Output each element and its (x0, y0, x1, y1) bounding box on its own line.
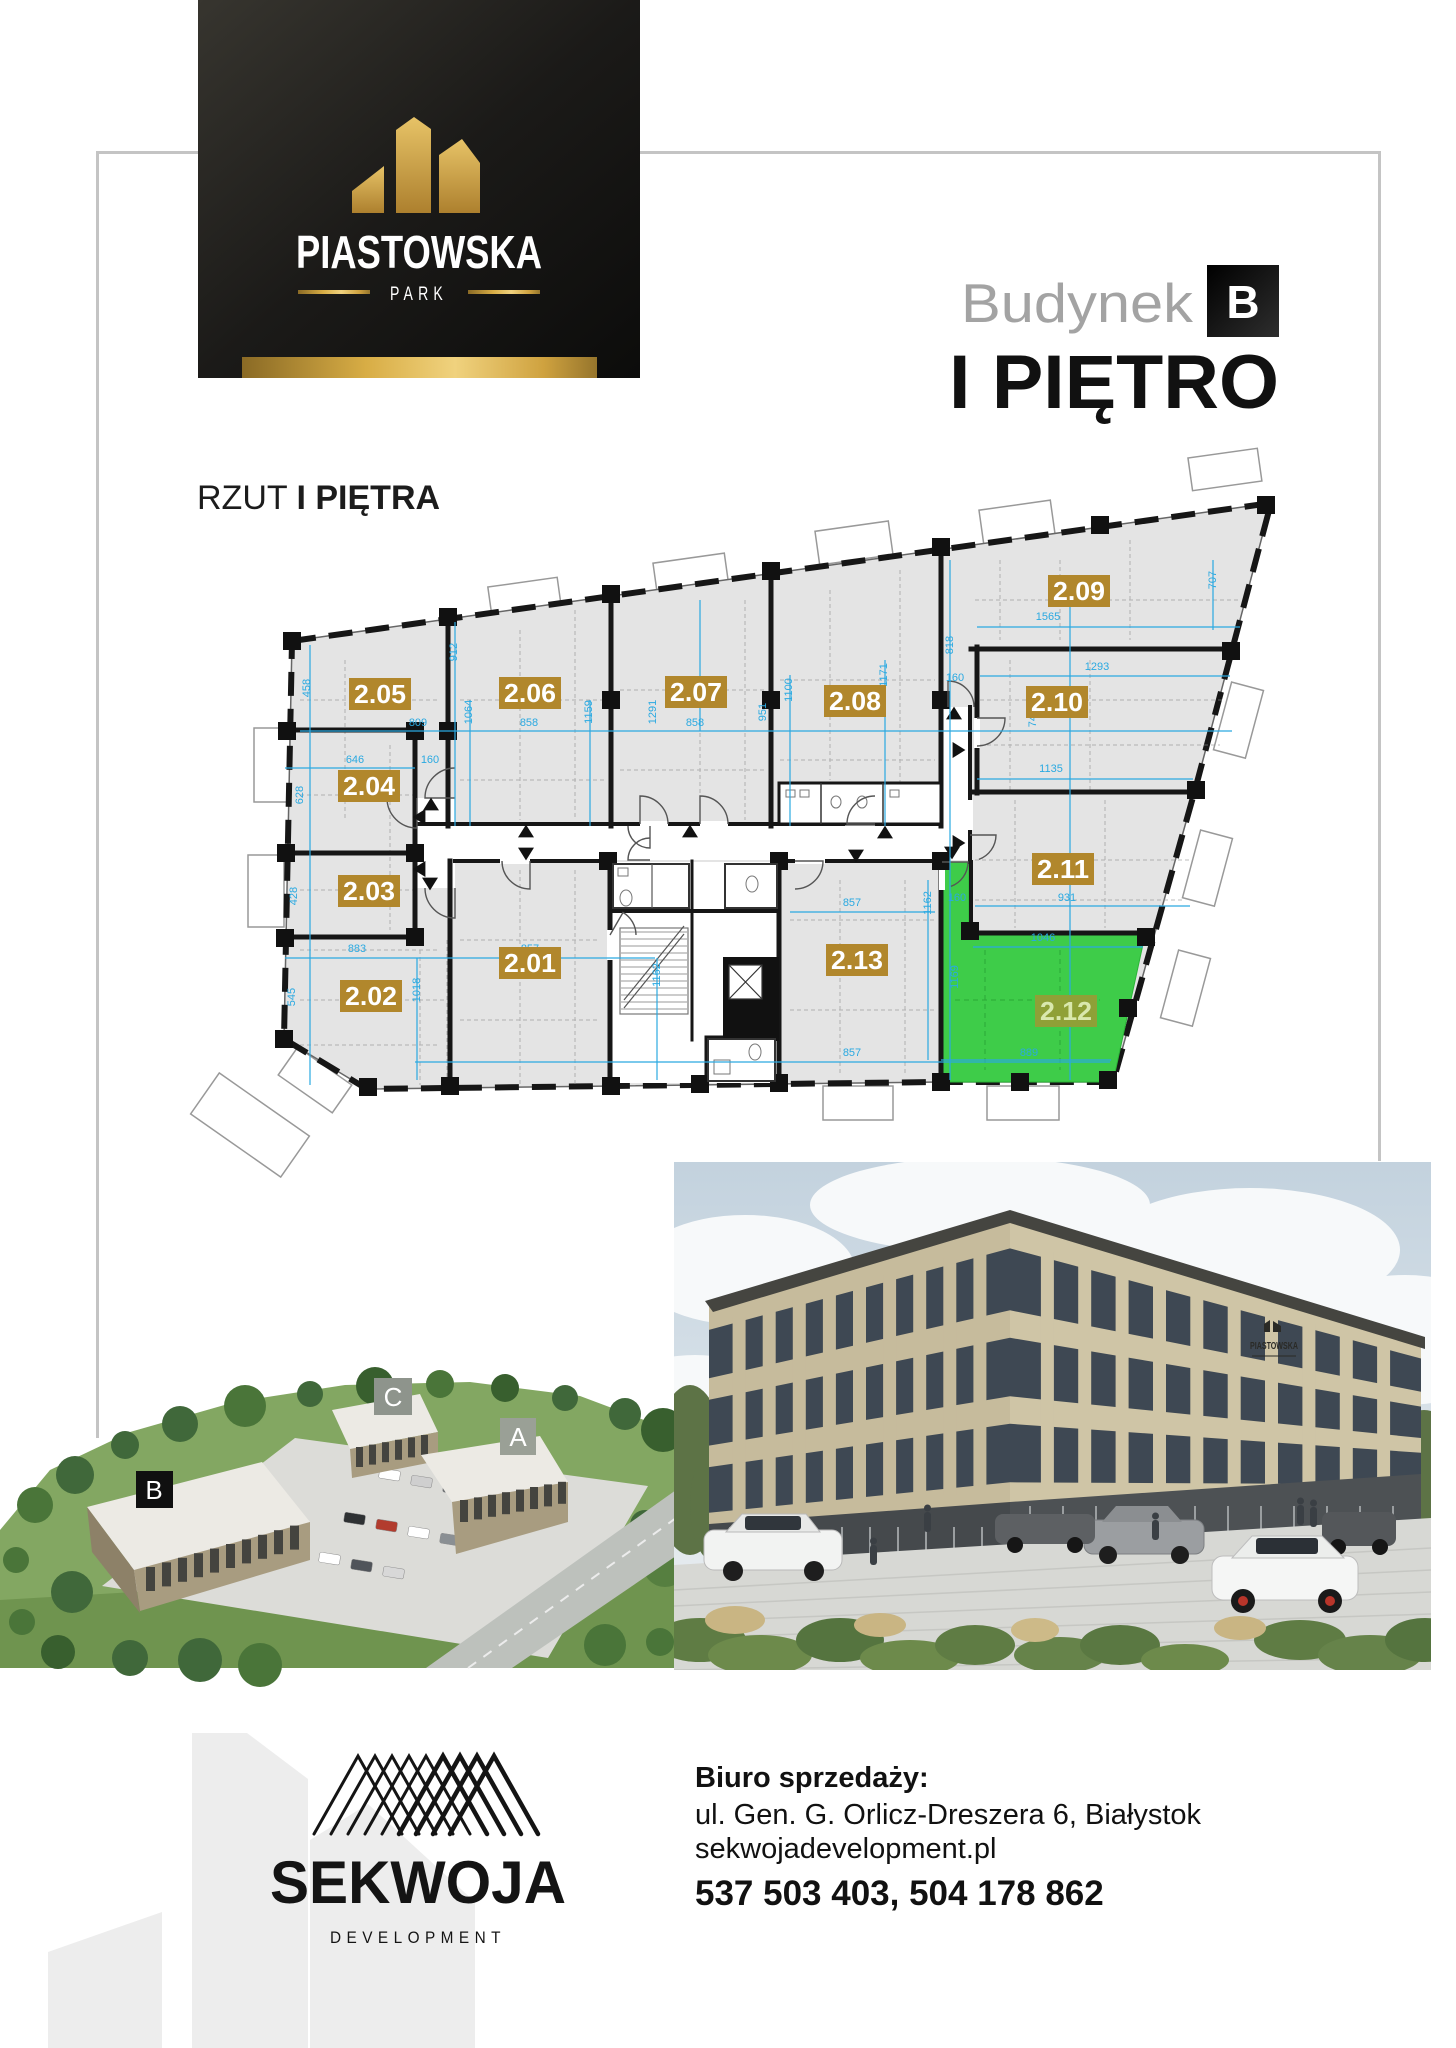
svg-text:I PIĘTRO: I PIĘTRO (949, 340, 1279, 425)
svg-text:646: 646 (346, 754, 364, 766)
svg-text:458: 458 (301, 679, 313, 697)
svg-text:2.13: 2.13 (831, 945, 883, 975)
svg-text:C: C (384, 1382, 403, 1412)
svg-text:2.06: 2.06 (504, 678, 556, 708)
svg-text:B: B (145, 1475, 162, 1505)
svg-text:889: 889 (1020, 1047, 1038, 1059)
svg-text:857: 857 (843, 897, 861, 909)
svg-text:2.10: 2.10 (1031, 687, 1083, 717)
svg-text:B: B (1226, 276, 1259, 328)
svg-text:1018: 1018 (411, 978, 423, 1002)
svg-text:Budynek: Budynek (961, 272, 1194, 334)
svg-text:2.09: 2.09 (1053, 576, 1105, 606)
svg-text:1135: 1135 (1039, 763, 1063, 775)
svg-text:160: 160 (421, 754, 439, 766)
svg-text:1046: 1046 (1031, 932, 1055, 944)
svg-text:2.01: 2.01 (504, 948, 556, 978)
svg-text:2.07: 2.07 (670, 677, 722, 707)
svg-text:1100: 1100 (783, 678, 795, 702)
svg-text:PARK: PARK (390, 284, 448, 305)
svg-text:2.08: 2.08 (829, 686, 881, 716)
svg-text:428: 428 (288, 887, 300, 905)
svg-text:2.12: 2.12 (1040, 996, 1092, 1026)
svg-text:160: 160 (946, 672, 964, 684)
svg-text:883: 883 (348, 943, 366, 955)
svg-text:RZUT I PIĘTRA: RZUT I PIĘTRA (197, 479, 440, 517)
svg-text:912: 912 (448, 643, 460, 661)
svg-text:1162: 1162 (651, 963, 663, 987)
svg-text:160: 160 (948, 892, 966, 904)
svg-text:1162: 1162 (922, 891, 934, 915)
svg-text:857: 857 (843, 1047, 861, 1059)
svg-text:545: 545 (286, 988, 298, 1006)
svg-text:DEVELOPMENT: DEVELOPMENT (330, 1928, 506, 1947)
svg-text:Biuro sprzedaży:: Biuro sprzedaży: (695, 1762, 929, 1794)
svg-text:2.04: 2.04 (343, 771, 396, 801)
svg-text:sekwojadevelopment.pl: sekwojadevelopment.pl (695, 1833, 996, 1865)
svg-text:951: 951 (757, 703, 769, 721)
svg-text:1565: 1565 (1036, 611, 1060, 623)
svg-text:1159: 1159 (583, 700, 595, 724)
svg-text:2.02: 2.02 (345, 981, 397, 1011)
svg-text:2.03: 2.03 (343, 876, 395, 906)
svg-text:ul. Gen. G. Orlicz-Dreszera 6,: ul. Gen. G. Orlicz-Dreszera 6, Białystok (695, 1799, 1202, 1831)
svg-text:858: 858 (686, 717, 704, 729)
svg-text:809: 809 (409, 717, 427, 729)
svg-text:2.11: 2.11 (1037, 854, 1089, 884)
svg-text:PIASTOWSKA: PIASTOWSKA (1250, 1341, 1298, 1352)
svg-text:SEKWOJA: SEKWOJA (270, 1849, 566, 1916)
svg-text:2.05: 2.05 (354, 679, 406, 709)
svg-text:PIASTOWSKA: PIASTOWSKA (296, 226, 542, 278)
svg-text:628: 628 (294, 786, 306, 804)
svg-text:1171: 1171 (878, 663, 890, 687)
svg-text:931: 931 (1058, 892, 1076, 904)
svg-text:1169: 1169 (949, 965, 961, 989)
svg-text:1064: 1064 (463, 700, 475, 724)
svg-text:537 503 403, 504 178 862: 537 503 403, 504 178 862 (695, 1874, 1104, 1913)
svg-text:707: 707 (1207, 571, 1219, 589)
svg-text:818: 818 (944, 636, 956, 654)
svg-text:858: 858 (520, 717, 538, 729)
svg-text:1293: 1293 (1085, 661, 1109, 673)
svg-text:1291: 1291 (647, 700, 659, 724)
svg-text:A: A (509, 1422, 527, 1452)
